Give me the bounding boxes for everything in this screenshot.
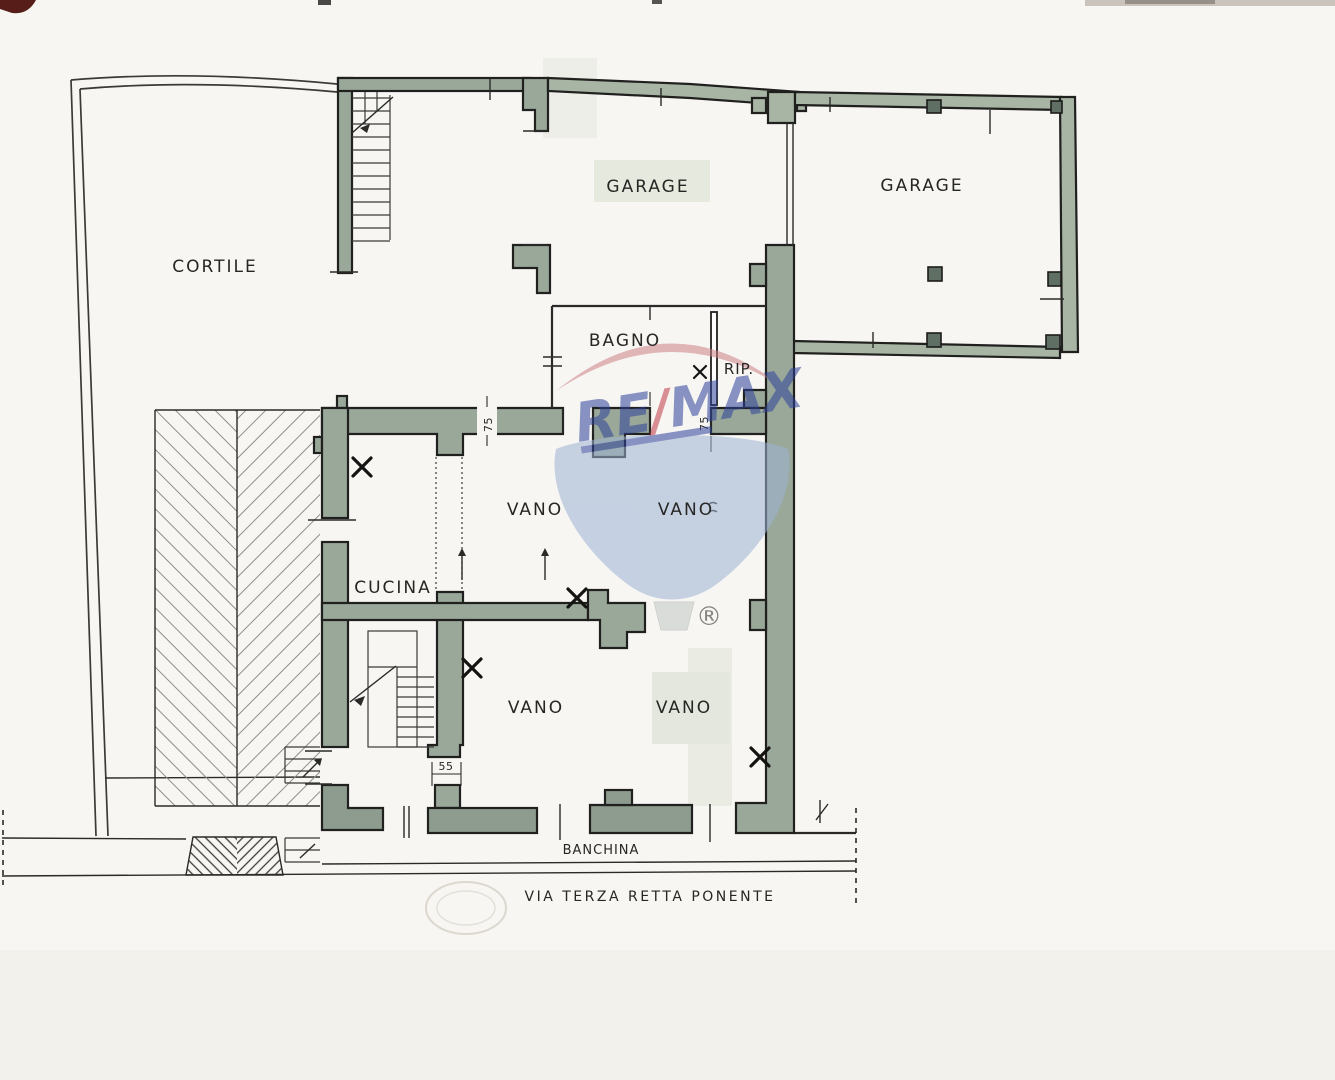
dim-55: 55 bbox=[439, 760, 454, 773]
label-garage-right: GARAGE bbox=[880, 176, 963, 196]
wall-bottom-seg1 bbox=[428, 808, 537, 833]
stair-top-exterior bbox=[352, 92, 393, 241]
wordmark-re: RE bbox=[570, 380, 656, 454]
label-garage-left: GARAGE bbox=[606, 177, 689, 197]
registered-mark: ® bbox=[696, 602, 722, 632]
floorplan-scan: 75 75 55 ® RE/MAX CORTILE GARAGE GARAGE … bbox=[0, 0, 1335, 1080]
wall-west-lower bbox=[322, 785, 383, 830]
stair-interior bbox=[350, 631, 434, 747]
label-vano-sw: VANO bbox=[508, 698, 564, 718]
label-cucina: CUCINA bbox=[354, 578, 432, 598]
label-street-name: VIA TERZA RETTA PONENTE bbox=[525, 889, 776, 905]
wall-top-band bbox=[338, 78, 530, 91]
driveway-apron bbox=[186, 837, 283, 875]
wall-bottom-seg2 bbox=[590, 805, 692, 833]
label-vano-nw: VANO bbox=[507, 500, 563, 520]
label-vano-ne: VANO bbox=[658, 500, 714, 520]
label-rip: RIP. bbox=[724, 360, 754, 378]
wall-band-under-bagno bbox=[322, 408, 563, 455]
floorplan-svg: 75 75 55 ® RE/MAX CORTILE GARAGE GARAGE … bbox=[0, 0, 1335, 1080]
scan-mark-red bbox=[0, 0, 36, 13]
label-vano-se: VANO bbox=[656, 698, 712, 718]
balloon-basket bbox=[654, 602, 694, 630]
wall-top-left-vertical bbox=[338, 78, 352, 273]
wall-west-upper bbox=[322, 408, 348, 518]
label-bagno: BAGNO bbox=[589, 331, 661, 351]
label-banchina: BANCHINA bbox=[563, 843, 640, 858]
dim-75-left: 75 bbox=[482, 417, 495, 432]
garage-pillars bbox=[927, 100, 1062, 349]
faint-stamp bbox=[426, 882, 506, 934]
wall-west-mid bbox=[322, 542, 348, 747]
wall-garage-right-east bbox=[1060, 97, 1078, 352]
wall-cucina-south bbox=[322, 603, 588, 620]
label-cortile: CORTILE bbox=[172, 257, 257, 277]
